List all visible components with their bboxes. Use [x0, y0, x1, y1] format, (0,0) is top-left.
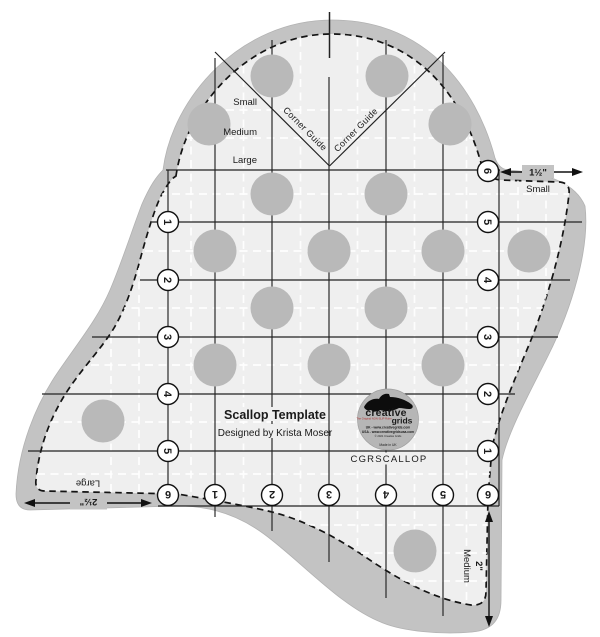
svg-text:6: 6 [481, 168, 493, 174]
svg-text:1: 1 [212, 488, 218, 500]
grip-dot [508, 230, 551, 273]
ruler-number: 4 [158, 384, 179, 405]
ruler-number: 1 [478, 441, 499, 462]
grip-dot [308, 230, 351, 273]
size-label-small: Small [233, 97, 257, 108]
sku-block: CGRSCALLOP [350, 453, 428, 466]
grip-dot [365, 173, 408, 216]
grip-dot [194, 230, 237, 273]
measurement-large-label: Large [76, 478, 100, 489]
svg-text:3: 3 [326, 488, 332, 500]
logo-brand-line2: grids [392, 416, 413, 426]
product-designer: Designed by Krista Moser [218, 428, 333, 439]
ruler-number: 4 [376, 485, 397, 506]
svg-text:3: 3 [161, 334, 173, 340]
grip-dot [251, 173, 294, 216]
ruler-number: 3 [319, 485, 340, 506]
ruler-number: 5 [478, 212, 499, 233]
grip-dot [429, 103, 472, 146]
ruler-number: 2 [478, 384, 499, 405]
logo-origin: Made in UK [379, 443, 397, 447]
ruler-number: 2 [158, 270, 179, 291]
ruler-number: 6 [478, 161, 499, 182]
svg-text:4: 4 [382, 488, 389, 500]
svg-text:2: 2 [161, 277, 173, 283]
grip-dot [422, 230, 465, 273]
measurement-small-value: 1½" [529, 168, 547, 179]
grip-dot [82, 400, 125, 443]
ruler-number: 2 [262, 485, 283, 506]
size-label-medium: Medium [223, 127, 257, 138]
ruler-number: 1 [158, 212, 179, 233]
ruler-number: 5 [433, 485, 454, 506]
ruler-number: 3 [158, 327, 179, 348]
svg-text:2: 2 [481, 391, 493, 397]
ruler-number: 6 [158, 485, 179, 506]
ruler-number: 3 [478, 327, 499, 348]
svg-text:4: 4 [161, 391, 173, 398]
grip-dot [194, 344, 237, 387]
grip-dot [251, 55, 294, 98]
svg-text:6: 6 [165, 488, 171, 500]
ruler-number: 1 [205, 485, 226, 506]
grip-dot [251, 287, 294, 330]
ruler-number: 5 [158, 441, 179, 462]
svg-text:2: 2 [269, 488, 275, 500]
logo-copyright: © 2021 Creative Grids [375, 434, 402, 438]
grip-dot [422, 344, 465, 387]
measurement-medium-label: Medium [461, 549, 472, 583]
ruler-number: 4 [478, 270, 499, 291]
grip-dot [308, 344, 351, 387]
measurement-large-value: 2½" [80, 496, 98, 507]
grip-dot [188, 103, 231, 146]
logo-uk-site: UK - www.creativegrids.com [366, 426, 410, 430]
svg-text:4: 4 [481, 277, 493, 284]
ruler-number: 6 [478, 485, 499, 506]
svg-text:3: 3 [481, 334, 493, 340]
svg-text:6: 6 [485, 488, 491, 500]
svg-text:5: 5 [440, 488, 446, 500]
logo-usa-site: USA - www.creativegridsusa.com [362, 430, 414, 434]
product-image: Small Medium Large Corner Guide Corner G… [0, 0, 600, 637]
grip-dot [366, 55, 409, 98]
scallop-template-drawing: Small Medium Large Corner Guide Corner G… [0, 0, 600, 637]
size-label-large: Large [233, 155, 257, 166]
svg-text:1: 1 [161, 219, 173, 225]
product-sku: CGRSCALLOP [351, 454, 428, 465]
grip-dot [365, 287, 408, 330]
grip-dot [394, 530, 437, 573]
measurement-small-label: Small [526, 184, 550, 195]
svg-text:1: 1 [481, 448, 493, 454]
logo-tagline: The Original NON-SLIP Ruler [356, 417, 391, 421]
product-title: Scallop Template [224, 408, 326, 422]
svg-text:5: 5 [481, 219, 493, 225]
svg-text:5: 5 [161, 448, 173, 454]
measurement-medium-value: 2" [473, 561, 484, 571]
